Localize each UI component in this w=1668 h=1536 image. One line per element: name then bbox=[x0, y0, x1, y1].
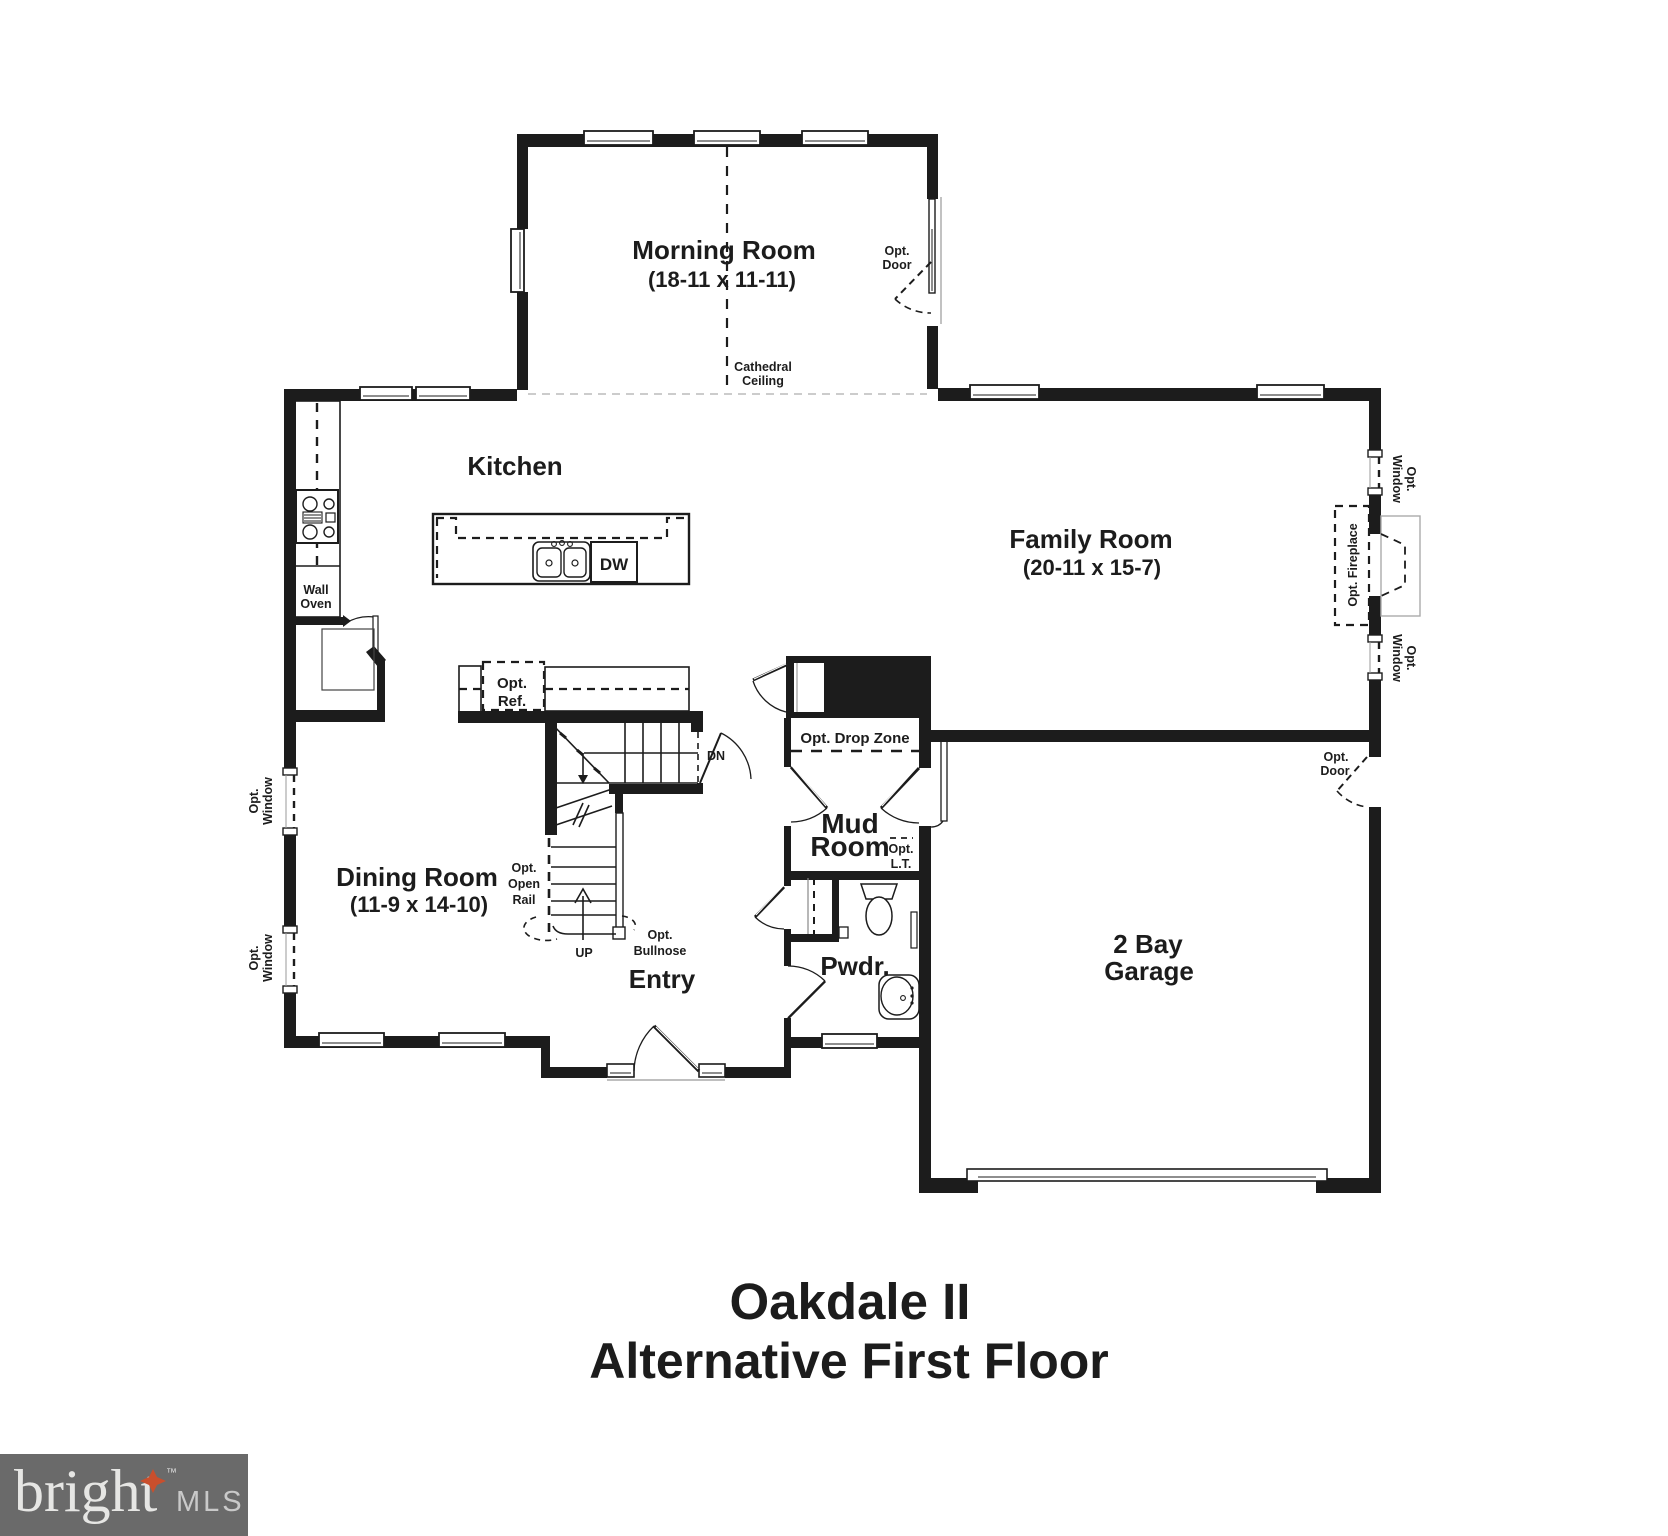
svg-text:DW: DW bbox=[600, 555, 629, 574]
svg-text:Entry: Entry bbox=[629, 964, 696, 994]
svg-text:Window: Window bbox=[1390, 455, 1404, 503]
svg-text:Opt. Fireplace: Opt. Fireplace bbox=[1346, 523, 1360, 606]
svg-text:Window: Window bbox=[261, 934, 275, 982]
svg-text:™: ™ bbox=[166, 1467, 177, 1479]
svg-text:Oven: Oven bbox=[300, 597, 331, 611]
svg-text:(18-11 x 11-11): (18-11 x 11-11) bbox=[648, 267, 796, 292]
svg-text:Opt. Drop Zone: Opt. Drop Zone bbox=[800, 730, 909, 747]
svg-text:Window: Window bbox=[261, 777, 275, 825]
svg-text:2 Bay: 2 Bay bbox=[1113, 929, 1183, 959]
svg-text:Open: Open bbox=[508, 877, 540, 891]
svg-text:Opt.: Opt. bbox=[247, 946, 261, 971]
svg-text:Opt.: Opt. bbox=[512, 861, 537, 875]
svg-text:(11-9 x 14-10): (11-9 x 14-10) bbox=[350, 892, 488, 917]
svg-text:Family Room: Family Room bbox=[1009, 524, 1172, 554]
svg-text:Ref.: Ref. bbox=[498, 693, 526, 710]
svg-text:Opt.: Opt. bbox=[885, 244, 910, 258]
svg-text:Ceiling: Ceiling bbox=[742, 374, 784, 388]
svg-text:Room: Room bbox=[810, 831, 889, 862]
svg-text:Garage: Garage bbox=[1104, 956, 1194, 986]
svg-text:Opt.: Opt. bbox=[1404, 467, 1418, 492]
svg-text:Opt.: Opt. bbox=[889, 842, 914, 856]
svg-text:UP: UP bbox=[575, 946, 592, 960]
svg-text:Door: Door bbox=[882, 258, 911, 272]
svg-text:bright: bright bbox=[14, 1458, 158, 1524]
svg-text:Wall: Wall bbox=[303, 583, 328, 597]
svg-text:Oakdale II: Oakdale II bbox=[730, 1273, 971, 1330]
svg-text:Alternative First Floor: Alternative First Floor bbox=[589, 1333, 1109, 1389]
svg-text:Door: Door bbox=[1320, 764, 1349, 778]
svg-text:L.T.: L.T. bbox=[891, 857, 912, 871]
svg-text:MLS: MLS bbox=[176, 1486, 245, 1518]
svg-text:Rail: Rail bbox=[513, 893, 536, 907]
svg-text:Opt.: Opt. bbox=[497, 675, 527, 692]
svg-text:Window: Window bbox=[1390, 634, 1404, 682]
svg-text:Opt.: Opt. bbox=[1324, 750, 1349, 764]
svg-text:Kitchen: Kitchen bbox=[467, 451, 562, 481]
svg-text:Bullnose: Bullnose bbox=[634, 944, 687, 958]
svg-text:Opt.: Opt. bbox=[648, 928, 673, 942]
svg-text:Morning Room: Morning Room bbox=[632, 235, 815, 265]
svg-text:Cathedral: Cathedral bbox=[734, 360, 792, 374]
svg-text:Opt.: Opt. bbox=[1404, 646, 1418, 671]
svg-text:(20-11 x 15-7): (20-11 x 15-7) bbox=[1023, 555, 1161, 580]
svg-text:Dining Room: Dining Room bbox=[336, 862, 498, 892]
svg-text:Pwdr.: Pwdr. bbox=[820, 951, 889, 981]
svg-text:Opt.: Opt. bbox=[247, 789, 261, 814]
